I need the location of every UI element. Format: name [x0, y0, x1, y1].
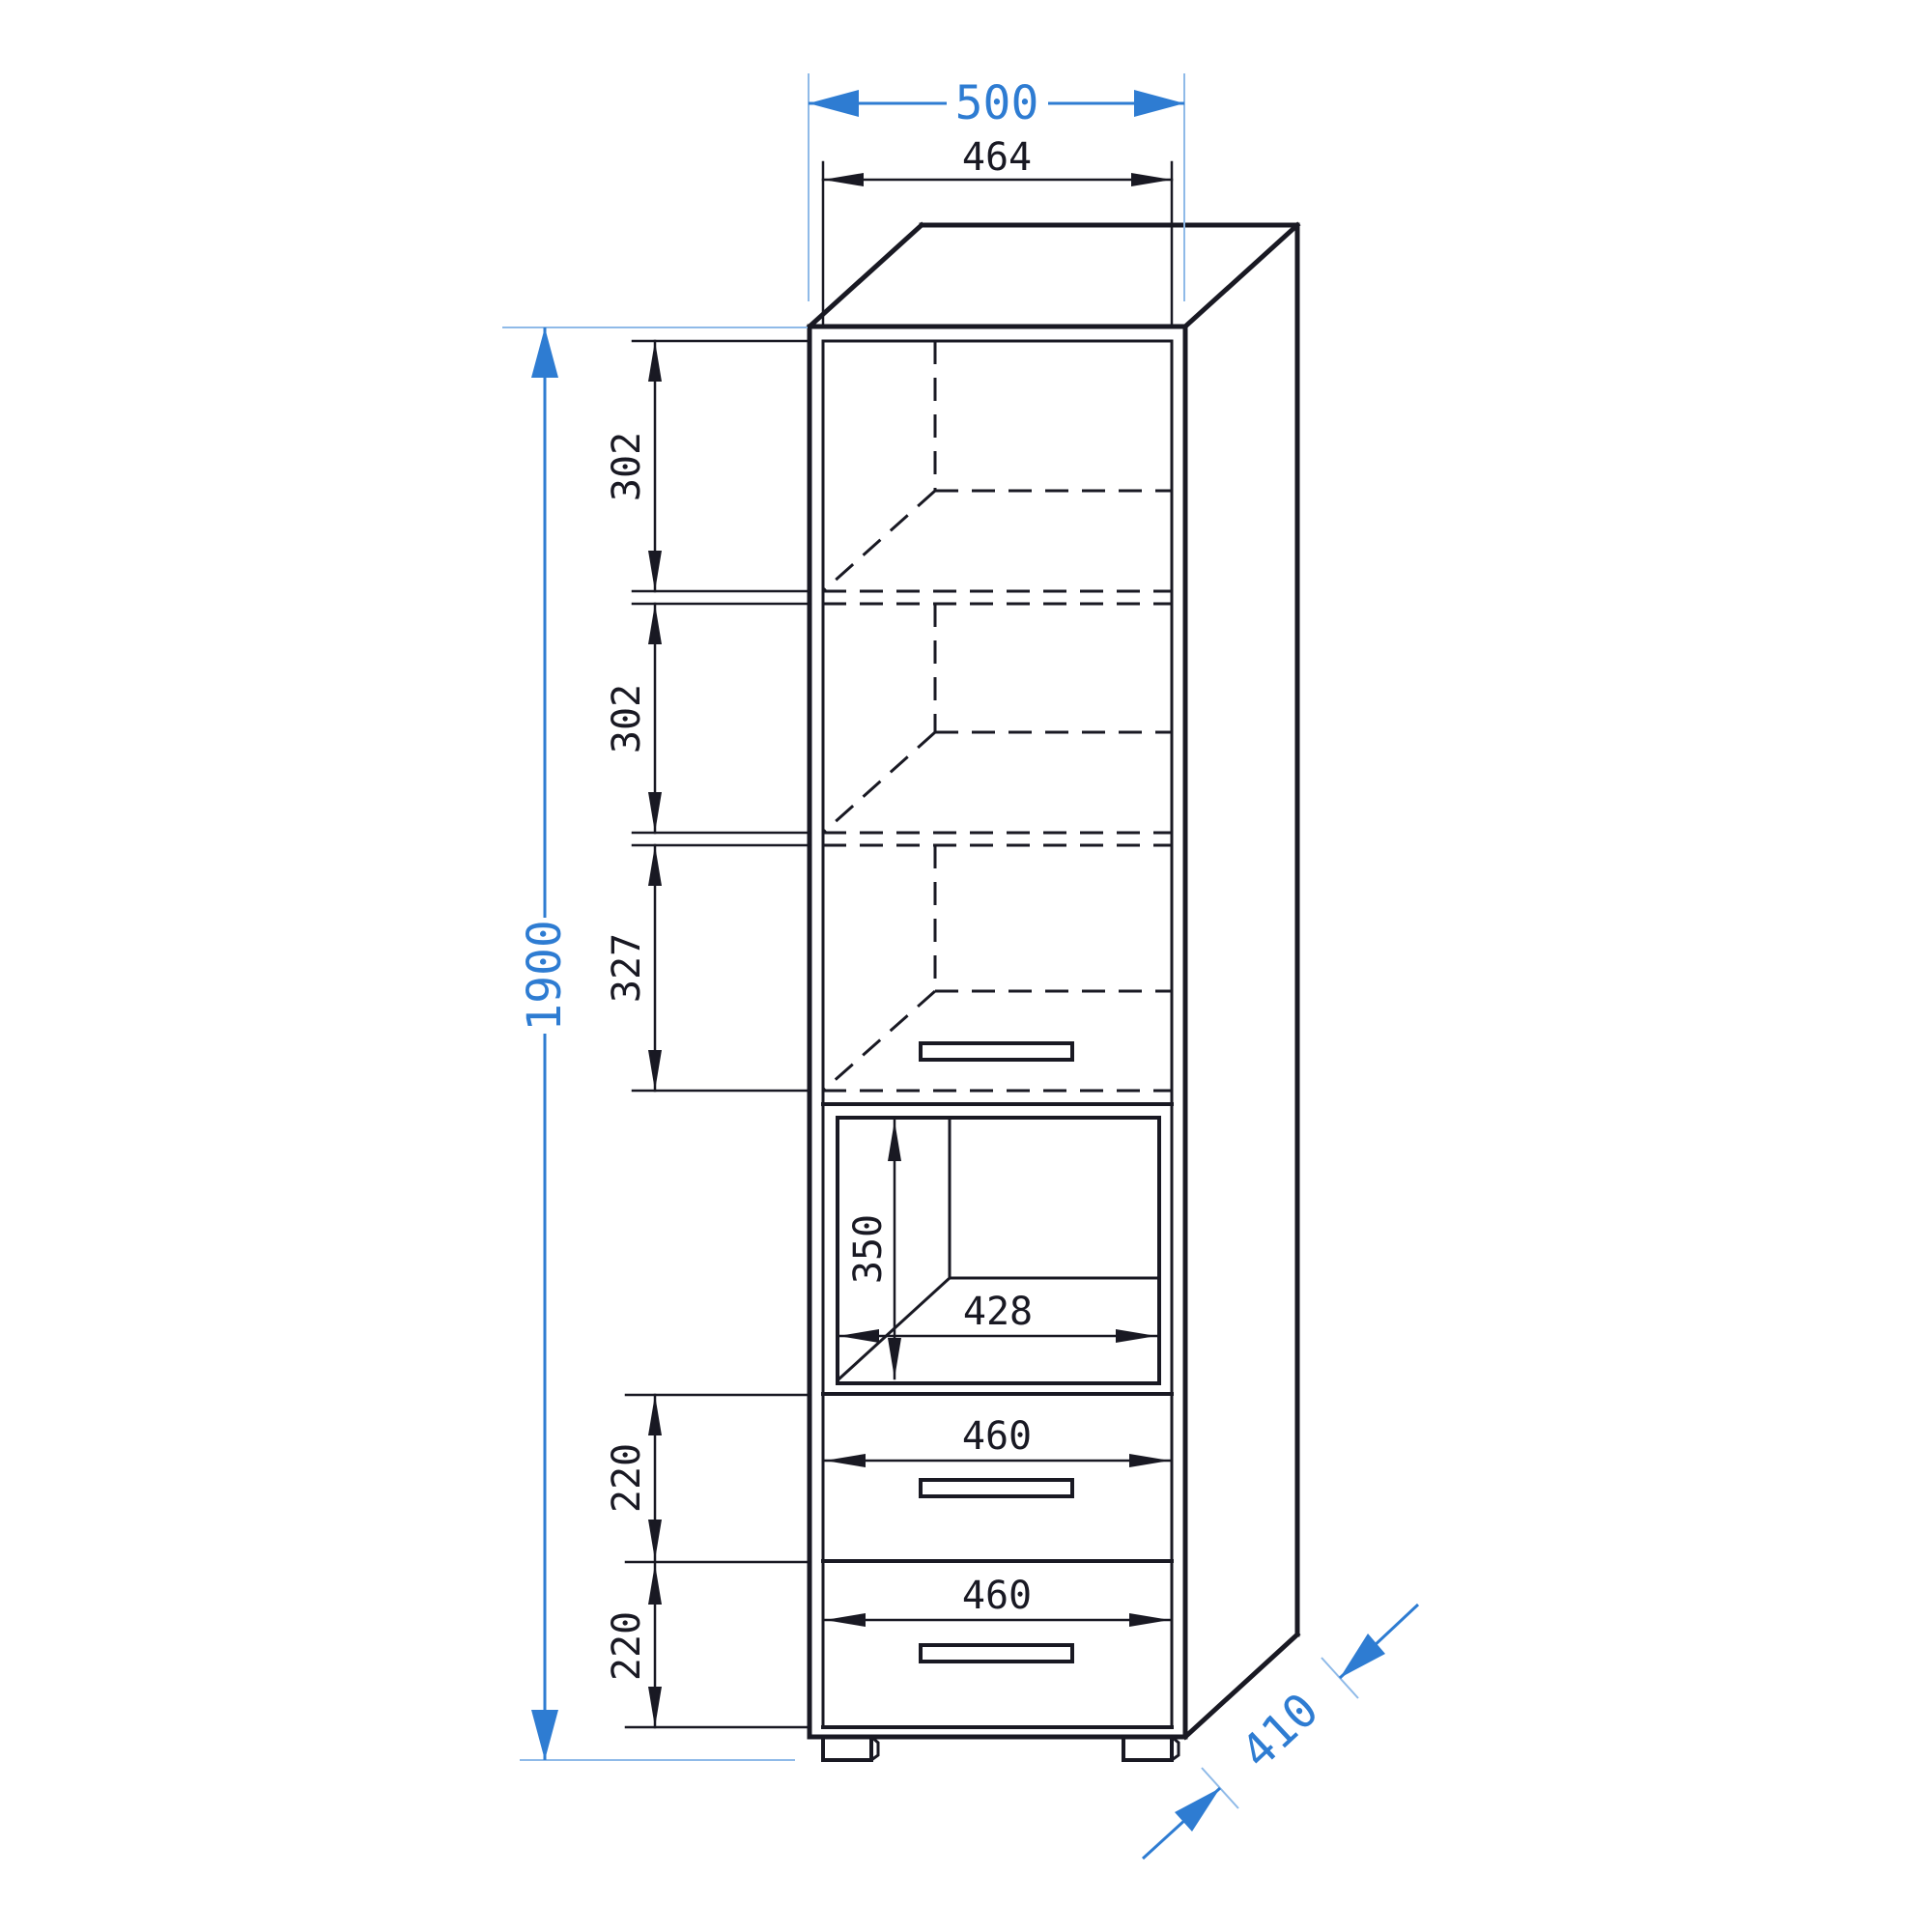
- dim-niche-width: 428: [838, 1290, 1156, 1343]
- dim-drawer-1-width: 460: [825, 1414, 1170, 1467]
- dim-inner-width: 464: [823, 135, 1172, 325]
- dim-drawer-2-width: 460: [825, 1574, 1170, 1627]
- dim-compartment-2-label: 302: [605, 684, 649, 753]
- dim-drawer-2-height: 220: [605, 1564, 662, 1727]
- dim-drawer-2-width-label: 460: [962, 1574, 1032, 1618]
- dim-compartment-1-label: 302: [605, 432, 649, 501]
- door-handle: [921, 1043, 1072, 1060]
- cabinet-drawing: 464 302 302 327 220 22: [0, 0, 1932, 1932]
- dim-outer-width: 500: [809, 73, 1184, 301]
- technical-drawing-page: 464 302 302 327 220 22: [0, 0, 1932, 1932]
- dim-compartment-1: 302: [605, 341, 662, 591]
- dim-compartment-2: 302: [605, 604, 662, 833]
- dim-drawer-1-height-label: 220: [605, 1443, 649, 1513]
- drawer-2-handle: [921, 1645, 1072, 1662]
- left-extension-lines: [626, 341, 810, 1727]
- dim-drawer-1-height: 220: [605, 1395, 662, 1560]
- drawer-1-handle: [921, 1480, 1072, 1496]
- cabinet-feet: [823, 1737, 1179, 1760]
- dim-inner-width-label: 464: [962, 135, 1032, 180]
- dim-depth-label: 410: [1231, 1683, 1329, 1779]
- dim-outer-width-label: 500: [955, 76, 1039, 130]
- dim-total-height-label: 1900: [518, 920, 572, 1032]
- dim-niche-height-label: 350: [846, 1214, 891, 1284]
- dim-niche-width-label: 428: [963, 1290, 1033, 1334]
- dim-compartment-3: 327: [605, 845, 662, 1091]
- dim-compartment-3-label: 327: [605, 933, 649, 1003]
- dim-drawer-1-width-label: 460: [962, 1414, 1032, 1459]
- dim-drawer-2-height-label: 220: [605, 1611, 649, 1681]
- cabinet-outline: [810, 225, 1297, 1737]
- hidden-shelf-lines: [823, 341, 1172, 1091]
